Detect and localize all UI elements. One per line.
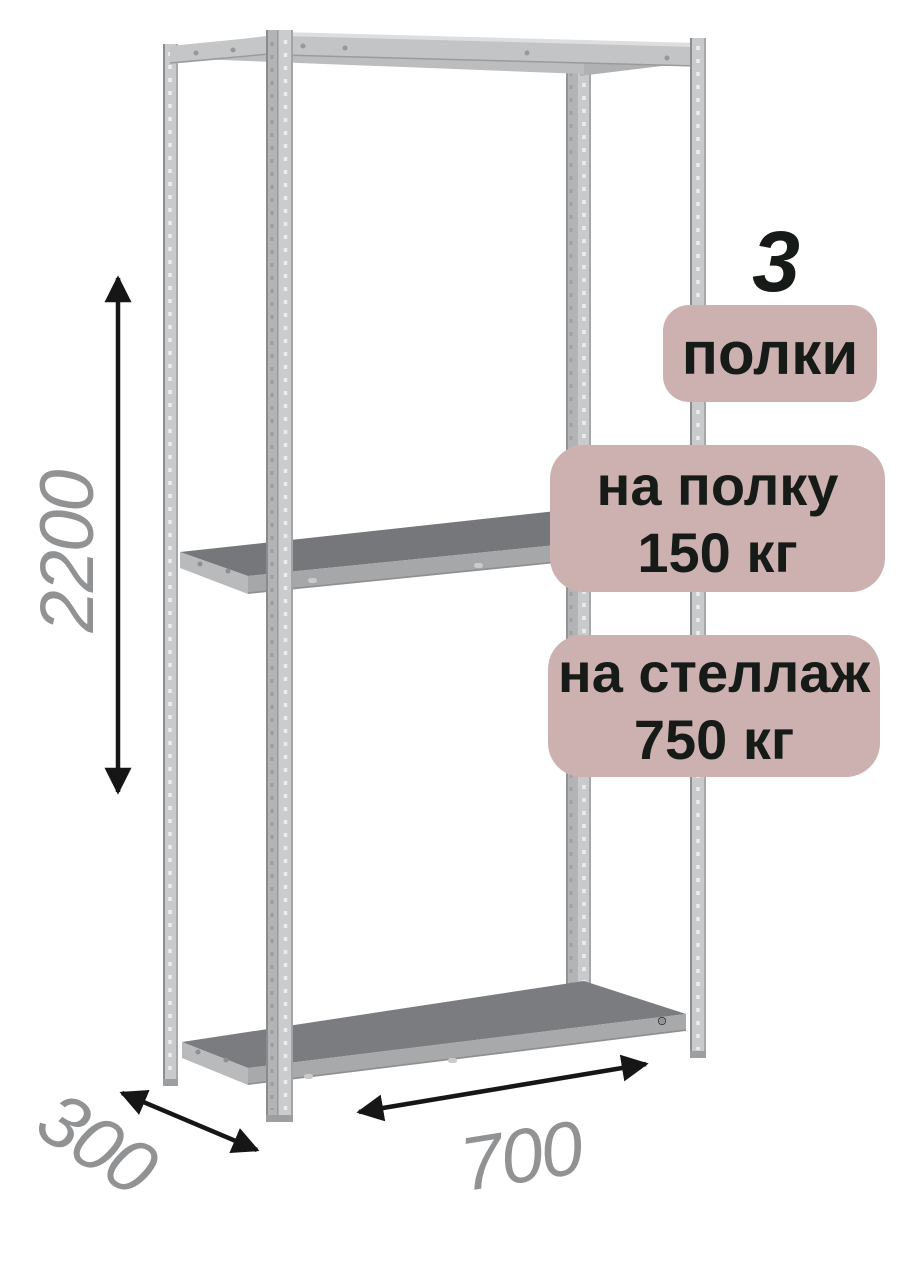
product-illustration: 2200 300 700 3 полки на полку 150 кг на …: [0, 0, 900, 1200]
per-shelf-load-line1: на полку: [597, 452, 839, 519]
shelf-count-badge-label: полки: [682, 319, 858, 388]
upright-front-left: [266, 30, 293, 1122]
upright-back-left: [163, 44, 178, 1086]
per-shelf-load-line2: 150 кг: [637, 519, 797, 586]
shelf-count-number: 3: [716, 212, 836, 312]
height-dimension-label: 2200: [28, 402, 108, 702]
per-rack-load-line2: 750 кг: [634, 706, 794, 773]
rack-drawing: [0, 0, 900, 1200]
per-rack-load-line1: на стеллаж: [558, 639, 870, 706]
per-shelf-load-badge: на полку 150 кг: [550, 445, 885, 592]
per-rack-load-badge: на стеллаж 750 кг: [548, 635, 880, 777]
shelf-count-badge: полки: [663, 305, 877, 402]
